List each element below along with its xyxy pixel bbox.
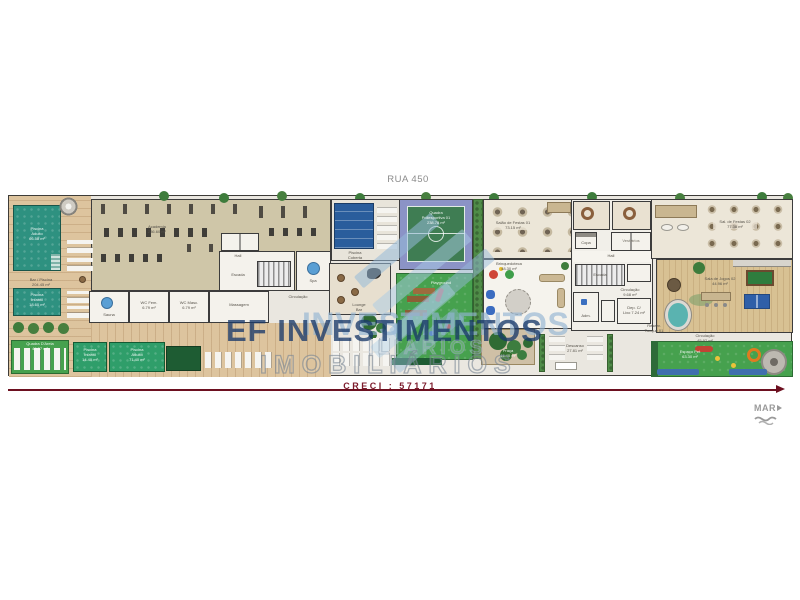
pouf-2-icon — [677, 224, 689, 231]
monitor-icon — [581, 299, 587, 305]
rest-bench — [555, 362, 577, 370]
pool-steps — [51, 254, 60, 270]
pet-toy-1-icon — [715, 356, 720, 361]
sand-court-loungers — [14, 348, 66, 370]
stairs-1 — [257, 261, 291, 287]
kids-sofa-icon — [539, 274, 565, 282]
generator-room — [166, 346, 201, 371]
deck-lounger-row — [205, 352, 275, 368]
wc-small — [601, 300, 615, 322]
games-plant-icon — [693, 262, 705, 274]
rest-label: Descanso 27.81 m² — [561, 343, 589, 353]
gym-equipment-row-3 — [104, 228, 214, 237]
gym-weight-rack — [101, 254, 171, 262]
hall-2 — [573, 251, 651, 262]
tech-room — [627, 264, 651, 282]
pantry-counter — [576, 233, 596, 237]
direction-arrow-line — [8, 389, 778, 391]
round-rug-icon — [505, 289, 531, 315]
kids-pool-2 — [73, 342, 107, 372]
sauna-tub-icon — [101, 297, 113, 309]
rest-hedge-right — [607, 334, 613, 372]
gym-equipment-row-4 — [269, 228, 319, 236]
deck-loungers-2 — [67, 258, 93, 271]
stairs-2 — [575, 264, 625, 286]
kitchen-counter — [733, 260, 791, 267]
wc-fem — [129, 291, 169, 323]
rest-hedge-left — [539, 334, 545, 372]
pouf-1-icon — [661, 224, 673, 231]
tree-row-left-icon — [13, 322, 24, 333]
curved-sofa-b-icon — [623, 207, 636, 220]
gym-equipment-row-2 — [259, 206, 321, 218]
pool-table-icon — [746, 270, 774, 286]
massage-rooms — [221, 233, 259, 251]
bar-stools-icon — [705, 303, 709, 307]
rest-loungers-1 — [549, 336, 565, 360]
trash-room — [617, 298, 651, 324]
wave-icon — [754, 416, 780, 425]
sea-arrow-icon — [777, 405, 782, 411]
kids-sofa-2-icon — [557, 288, 565, 308]
rest-loungers-2 — [587, 336, 603, 360]
whirlpool-icon — [665, 300, 691, 330]
pet-sandpit-center-icon — [770, 358, 778, 366]
pet-lounger-2 — [729, 369, 767, 375]
kids-pool — [13, 288, 61, 316]
changing-rooms — [611, 232, 651, 251]
party-room-2-tables — [701, 201, 791, 255]
party-room-1-buffet — [547, 202, 571, 213]
ef-logo-watermark-icon — [329, 221, 499, 351]
pingpong-table-icon — [744, 294, 770, 309]
floorplan-flyer: RUA 450 Piscina Adulto 66.58 m² Bar / Pi… — [0, 0, 800, 600]
pet-toy-2-icon — [731, 363, 736, 368]
kids-table-yellow-icon — [499, 267, 503, 271]
pet-tunnel-icon — [695, 346, 713, 352]
tree-row-icon — [159, 191, 169, 201]
floorplan: Piscina Adulto 66.58 m² Bar / Piscina 20… — [8, 195, 792, 376]
gym-equipment-row-1 — [101, 204, 251, 214]
admin-room — [573, 292, 599, 322]
kids-table-green-icon — [505, 270, 514, 279]
direction-arrowhead-icon — [776, 385, 785, 393]
jacuzzi-icon — [59, 197, 78, 216]
sea-label: MAR — [754, 403, 776, 413]
pet-lounger-1 — [657, 369, 699, 375]
games-round-table-icon — [667, 278, 681, 292]
deck-loungers-1 — [67, 240, 93, 253]
massage-room-2 — [209, 291, 269, 323]
circulation-1-label: Circulação — [273, 294, 323, 299]
spa-tub-icon — [307, 262, 320, 275]
sea-label-group: MAR — [754, 398, 794, 420]
street-label: RUA 450 — [348, 174, 468, 186]
wc-masc — [169, 291, 209, 323]
curved-sofa-a-icon — [581, 207, 594, 220]
pet-hoop-icon — [747, 348, 761, 362]
deck-table-icon — [79, 276, 86, 283]
adult-pool-2 — [109, 342, 165, 372]
bar-counter — [701, 292, 731, 301]
long-table — [655, 205, 697, 218]
kids-room-plant-icon — [561, 262, 569, 270]
